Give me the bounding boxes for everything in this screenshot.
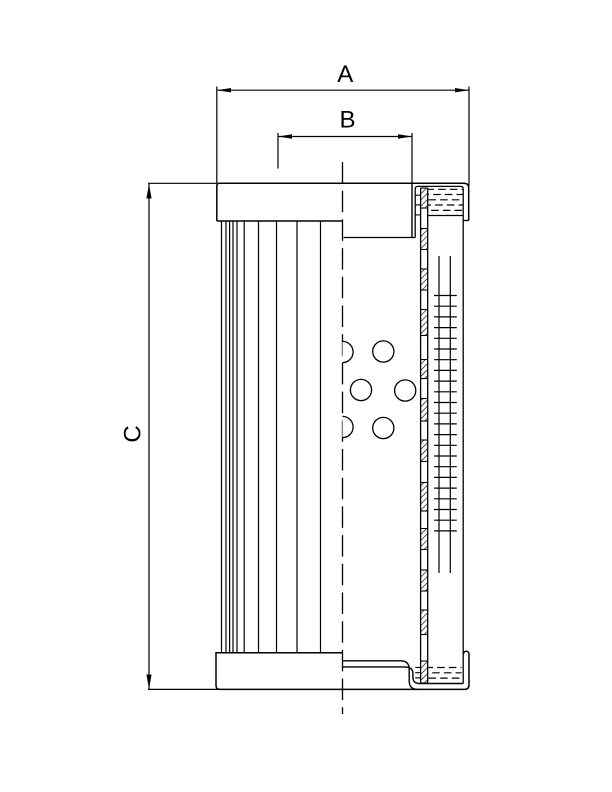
svg-text:B: B [339, 107, 355, 134]
svg-text:C: C [120, 425, 147, 442]
svg-text:A: A [337, 61, 353, 88]
